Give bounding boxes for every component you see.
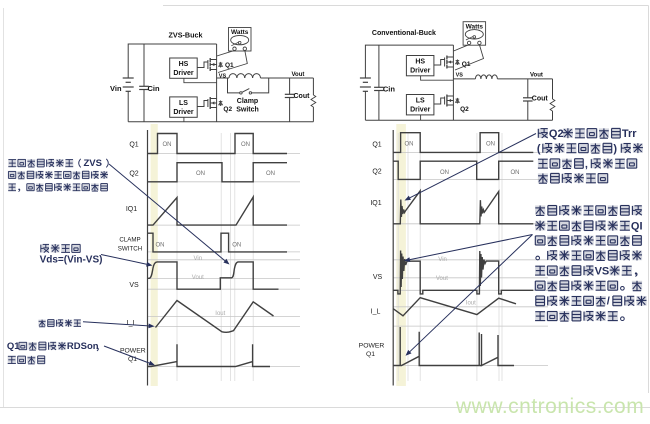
svg-text:Switch: Switch	[236, 107, 259, 114]
svg-text:Vout: Vout	[436, 276, 448, 282]
svg-text:Cin: Cin	[148, 84, 161, 93]
svg-text:Trr: Trr	[622, 128, 637, 140]
svg-text:Cin: Cin	[383, 85, 396, 94]
svg-text:ON: ON	[241, 142, 250, 148]
svg-text:Iout: Iout	[466, 300, 476, 306]
svg-text:Driver: Driver	[410, 107, 431, 114]
svg-text:HS: HS	[179, 61, 189, 68]
svg-text:Q1: Q1	[129, 141, 138, 148]
svg-text:Q1: Q1	[7, 341, 20, 352]
svg-text:ON: ON	[405, 141, 414, 147]
svg-text:Cout: Cout	[532, 96, 549, 103]
svg-text:Vout: Vout	[530, 73, 543, 79]
svg-text:LS: LS	[416, 98, 425, 105]
svg-text:Clamp: Clamp	[237, 98, 258, 105]
svg-text:CLAMP: CLAMP	[119, 237, 140, 244]
svg-text:Driver: Driver	[173, 109, 194, 116]
svg-text:Q1: Q1	[372, 141, 381, 148]
svg-text:Q2: Q2	[460, 106, 469, 113]
svg-text:Driver: Driver	[410, 68, 431, 75]
svg-text:POWER: POWER	[359, 342, 385, 349]
svg-text:ON: ON	[163, 142, 172, 148]
svg-text:www.cntronics.com: www.cntronics.com	[455, 395, 644, 418]
svg-text:VS: VS	[595, 265, 610, 277]
svg-text:SWITCH: SWITCH	[118, 246, 142, 253]
svg-text:IQ1: IQ1	[126, 206, 137, 213]
svg-text:Vout: Vout	[192, 275, 204, 281]
svg-text:ON: ON	[440, 170, 449, 176]
svg-text:/: /	[607, 296, 610, 308]
svg-text:ON: ON	[156, 243, 165, 249]
svg-text:VS: VS	[373, 274, 383, 281]
svg-text:ZVS-Buck: ZVS-Buck	[169, 31, 204, 40]
svg-text:Q1: Q1	[366, 351, 375, 358]
svg-text:): )	[613, 143, 617, 155]
svg-text:LS: LS	[179, 100, 188, 107]
svg-text:RDSon: RDSon	[67, 341, 99, 352]
svg-text:ZVS: ZVS	[84, 158, 102, 169]
svg-text:Iout: Iout	[215, 311, 225, 317]
svg-text:VS: VS	[219, 74, 227, 80]
svg-text:Vin: Vin	[194, 256, 203, 262]
svg-text:ON: ON	[511, 170, 520, 176]
svg-text:HS: HS	[415, 59, 425, 66]
svg-text:Vout: Vout	[292, 72, 305, 78]
svg-text:ON: ON	[486, 141, 495, 147]
svg-text:Vds=(Vin-VS): Vds=(Vin-VS)	[40, 255, 103, 266]
svg-text:(: (	[537, 143, 541, 155]
svg-text:ON: ON	[266, 171, 275, 177]
svg-text:Q2: Q2	[372, 168, 381, 175]
svg-text:Q2: Q2	[549, 128, 564, 140]
svg-text:IQ1: IQ1	[370, 200, 381, 207]
svg-text:Cout: Cout	[294, 93, 311, 100]
svg-text:QI: QI	[631, 221, 643, 233]
svg-text:ON: ON	[232, 243, 241, 249]
svg-text:I_L: I_L	[127, 320, 137, 327]
svg-text:,: ,	[585, 158, 588, 170]
svg-text:Q2: Q2	[223, 106, 232, 113]
svg-text:I_L: I_L	[371, 308, 381, 315]
svg-text:ON: ON	[196, 171, 205, 177]
svg-text:Conventional-Buck: Conventional-Buck	[372, 28, 437, 37]
svg-text:VS: VS	[129, 282, 139, 289]
svg-text:Vin: Vin	[110, 84, 122, 93]
svg-text:Vin: Vin	[438, 257, 447, 263]
svg-text:Q2: Q2	[129, 170, 138, 177]
svg-text:VS: VS	[456, 73, 464, 79]
svg-text:Driver: Driver	[173, 70, 194, 77]
